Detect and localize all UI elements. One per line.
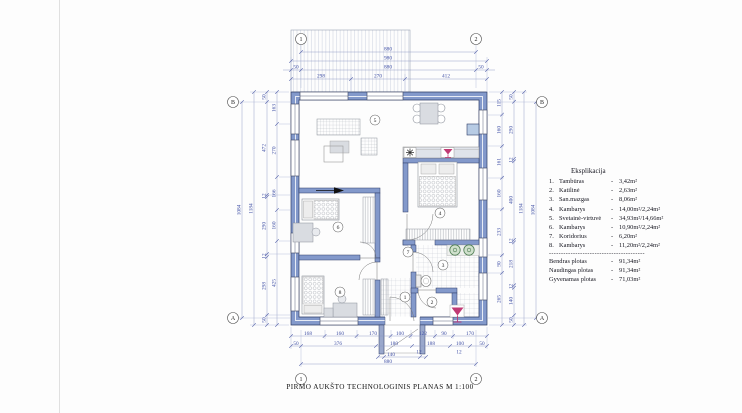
dim-label: 140 [509, 297, 515, 305]
legend-dash: - [611, 275, 619, 284]
drawing-title: PIRMO AUKŠTO TECHNOLOGINIS PLANAS M 1:10… [230, 383, 530, 391]
legend-dash: - [611, 266, 619, 275]
svg-text:B: B [231, 100, 235, 106]
dim-label: 1184 [519, 203, 525, 214]
legend-total-area: 91,34m² [619, 257, 742, 266]
entry-shelf [381, 279, 388, 315]
svg-text:A: A [540, 316, 545, 322]
legend-dash: - [611, 186, 619, 195]
closet-room8 [363, 279, 375, 315]
window [291, 104, 299, 134]
dim-label: 90 [497, 261, 503, 267]
dim-label: 161 [497, 158, 503, 166]
dim-label: 400 [509, 196, 515, 204]
svg-text:7: 7 [407, 250, 410, 256]
legend-item: 6.Kambarys-10,90m²/2,24m² [549, 223, 742, 232]
svg-text:2: 2 [475, 37, 478, 43]
window [433, 317, 453, 325]
dim-label: 90 [441, 331, 447, 337]
legend-item-num: 8. [549, 241, 559, 250]
legend: Eksplikacija 1.Tambūras-3,42m² 2.Katilin… [549, 167, 742, 284]
dim-label: 12 [261, 253, 267, 259]
legend-item-area: 34,93m²/14,66m² [619, 214, 742, 223]
legend-total-area: 71,03m² [619, 275, 742, 284]
dim-label: 180 [390, 341, 398, 347]
room-label-1: 1 [400, 292, 410, 302]
window [300, 92, 348, 100]
legend-title: Eksplikacija [571, 167, 742, 176]
kitchen-counter [403, 147, 479, 158]
legend-dash: - [611, 205, 619, 214]
dim-label: 122 [419, 331, 427, 337]
svg-text:1: 1 [404, 295, 407, 301]
window [479, 110, 487, 134]
dim-label: 425 [272, 279, 278, 287]
dim-label: 163 [272, 104, 278, 112]
legend-total-name: Naudingas plotas [549, 266, 611, 275]
legend-item-area: 2,63m² [619, 186, 742, 195]
dim-label: 12 [509, 157, 515, 163]
window [291, 140, 299, 176]
room-label-5: 5 [370, 115, 380, 125]
dim-label: 50 [293, 341, 299, 347]
dim-label: 50 [479, 341, 485, 347]
sofa [317, 119, 360, 135]
legend-total: Bendras plotas-91,34m² [549, 257, 742, 266]
svg-text:B: B [540, 100, 544, 106]
door-room6 [360, 242, 376, 258]
legend-item: 3.San.mazgas-8,06m² [549, 195, 742, 204]
legend-item: 5.Svetainė-virtuvė-34,93m²/14,66m² [549, 214, 742, 223]
dim-label: 290 [509, 126, 515, 134]
room-label-7: 7 [403, 247, 413, 257]
legend-item: 7.Koridorius-6,20m² [549, 232, 742, 241]
legend-item: 4.Kambarys-14,00m²/2,24m² [549, 205, 742, 214]
legend-item-name: Katilinė [559, 186, 611, 195]
window [320, 317, 358, 325]
legend-dash: - [611, 177, 619, 186]
legend-item-name: Kambarys [559, 241, 611, 250]
legend-item-area: 14,00m²/2,24m² [619, 205, 742, 214]
legend-item-num: 6. [549, 223, 559, 232]
dim-label: 188 [427, 341, 435, 347]
legend-item-name: Kambarys [559, 205, 611, 214]
dim-label: 12 [416, 350, 422, 356]
svg-text:2: 2 [431, 300, 434, 306]
legend-item-name: Kambarys [559, 223, 611, 232]
legend-dash: - [611, 195, 619, 204]
window [479, 238, 487, 257]
room-label-2: 2 [427, 297, 437, 307]
dim-label: 50 [509, 317, 515, 323]
legend-item-area: 8,06m² [619, 195, 742, 204]
scanned-document-page: 880 980 50 880 50 298 270 412 168 160 17… [0, 0, 742, 413]
window [479, 168, 487, 200]
svg-text:3: 3 [442, 263, 445, 269]
axis-marker-1-top: 1 [296, 34, 307, 45]
legend-item-num: 5. [549, 214, 559, 223]
room-label-3: 3 [438, 260, 448, 270]
dim-label: 100 [396, 331, 404, 337]
svg-text:8: 8 [339, 290, 342, 296]
dim-label: 472 [261, 144, 267, 152]
wardrobe-room4 [406, 229, 470, 240]
axis-marker-2-top: 2 [471, 34, 482, 45]
legend-item-num: 7. [549, 232, 559, 241]
legend-item-num: 1. [549, 177, 559, 186]
dim-label: 100 [456, 341, 464, 347]
toilet [416, 275, 431, 287]
legend-dash: - [611, 241, 619, 250]
dim-label: 115 [497, 99, 503, 107]
dim-label: 412 [442, 74, 450, 80]
legend-item-area: 3,42m² [619, 177, 742, 186]
dim-label: 170 [466, 331, 474, 337]
dim-label: 160 [497, 126, 503, 134]
room-label-4: 4 [435, 208, 445, 218]
dim-label: 160 [497, 189, 503, 197]
legend-dash: - [611, 214, 619, 223]
legend-item-name: Koridorius [559, 232, 611, 241]
dim-label: 168 [304, 331, 312, 337]
dim-label: 376 [334, 341, 342, 347]
dim-label: 12 [509, 238, 515, 244]
legend-item: 2.Katilinė-2,63m² [549, 186, 742, 195]
axis-marker-A-right: A [537, 313, 548, 324]
dim-label: 290 [261, 222, 267, 230]
bed-room6 [302, 199, 339, 220]
legend-item-area: 6,20m² [619, 232, 742, 241]
dim-label: 12 [509, 284, 515, 290]
legend-item: 8.Kambarys-11,20m²/2,24m² [549, 241, 742, 250]
dim-label: 166 [272, 189, 278, 197]
dim-label: 50 [261, 94, 267, 100]
window [367, 92, 403, 100]
legend-dash: - [611, 232, 619, 241]
dim-label: 160 [272, 221, 278, 229]
legend-item-num: 4. [549, 205, 559, 214]
dim-label: 880 [384, 65, 392, 71]
legend-item-num: 2. [549, 186, 559, 195]
svg-text:4: 4 [439, 211, 442, 217]
dim-label: 12 [261, 193, 267, 199]
bed-room4 [418, 162, 457, 207]
dim-label: 50 [478, 65, 484, 71]
fireplace-unit [467, 124, 479, 135]
window [291, 277, 299, 311]
legend-total-name: Bendras plotas [549, 257, 611, 266]
side-table [330, 141, 349, 153]
desk-room6 [293, 223, 320, 242]
dim-label: 160 [336, 331, 344, 337]
legend-total-name: Gyvenamas plotas [549, 275, 611, 284]
legend-total: Naudingas plotas-91,34m² [549, 266, 742, 275]
svg-text:A: A [231, 316, 236, 322]
dim-label: 218 [509, 260, 515, 268]
room-label-6: 6 [333, 222, 343, 232]
axis-marker-A-left: A [228, 313, 239, 324]
svg-text:5: 5 [374, 118, 377, 124]
legend-dash: - [611, 223, 619, 232]
dim-label: 50 [509, 94, 515, 100]
room-label-8: 8 [335, 287, 345, 297]
dim-label: 170 [369, 331, 377, 337]
closet-room6 [363, 197, 375, 243]
legend-item-name: Svetainė-virtuvė [559, 214, 611, 223]
dim-label: 270 [374, 74, 382, 80]
dim-label: 298 [261, 282, 267, 290]
desk-room8 [324, 295, 357, 317]
legend-dash: - [611, 257, 619, 266]
dim-label: 1084 [531, 204, 537, 215]
dim-label: 265 [497, 295, 503, 303]
dim-label: 12 [456, 350, 462, 356]
window [479, 273, 487, 300]
sink-icon [406, 149, 414, 157]
svg-text:1: 1 [300, 37, 303, 43]
dim-label: 980 [384, 56, 392, 62]
legend-item-name: San.mazgas [559, 195, 611, 204]
axis-marker-B-left: B [228, 97, 239, 108]
dim-label: 140 [387, 352, 395, 358]
dim-label: 880 [384, 359, 392, 365]
dim-label: 880 [384, 47, 392, 53]
legend-item: 1.Tambūras-3,42m² [549, 177, 742, 186]
legend-item-area: 11,20m²/2,24m² [619, 241, 742, 250]
armchair [361, 138, 377, 155]
dim-label: 50 [293, 65, 299, 71]
legend-total-area: 91,34m² [619, 266, 742, 275]
washer-dryer [447, 245, 479, 256]
legend-total: Gyvenamas plotas-71,03m² [549, 275, 742, 284]
dim-label: 298 [317, 74, 325, 80]
legend-item-name: Tambūras [559, 177, 611, 186]
legend-item-area: 10,90m²/2,24m² [619, 223, 742, 232]
dim-label: 1084 [237, 204, 243, 215]
axis-marker-B-right: B [537, 97, 548, 108]
svg-text:6: 6 [337, 225, 340, 231]
dim-label: 270 [272, 146, 278, 154]
dining-set [413, 103, 445, 124]
dim-label: 1184 [249, 203, 255, 214]
legend-item-num: 3. [549, 195, 559, 204]
bed-room8 [302, 276, 324, 314]
door-room8 [359, 262, 377, 280]
dim-label: 50 [261, 317, 267, 323]
dim-label: 233 [497, 228, 503, 236]
